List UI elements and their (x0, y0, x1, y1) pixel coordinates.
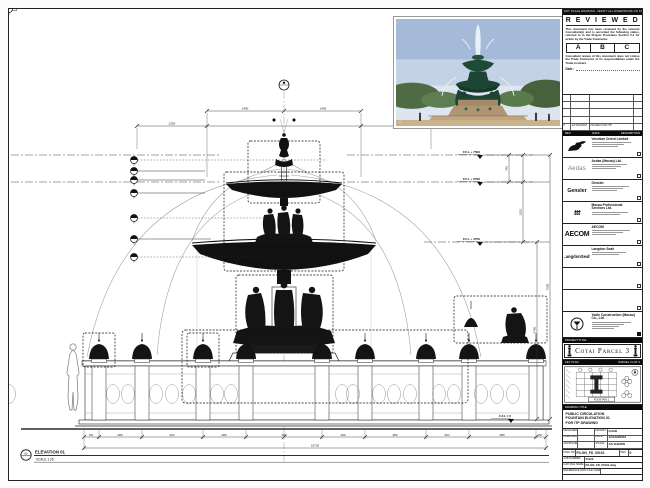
consultant-checkbox[interactable] (637, 240, 641, 244)
project-name: Cotai Parcel 3 (575, 347, 630, 355)
dwg-number: P3-GN_FD_05101 (576, 450, 620, 456)
reference-photo: © (393, 16, 563, 129)
upper-basin (226, 180, 342, 206)
approved-label: APPROVED (563, 442, 578, 449)
consultant-card-langdon-seah: LangdonSeah Langdon Seah (563, 246, 642, 268)
consultant-card-empty-2 (563, 290, 642, 312)
dim-bottom: 450 (89, 434, 94, 437)
designed-label: DESIGNED (563, 429, 578, 436)
cad-file-label: CAD FILE NAME (563, 463, 585, 468)
job-number: 51123 (585, 457, 642, 462)
reviewed-paragraph-2: Consultant review of this document does … (566, 55, 640, 65)
revision-row (563, 109, 642, 116)
dim-bottom: 2610 (444, 434, 450, 437)
photo-image: © (396, 19, 560, 126)
contractor-name: Yadie Construction (Macau) Co., Ltd. (592, 314, 637, 321)
consultant-name: Langdon Seah (592, 248, 637, 252)
svg-text:F.F.L + 7500: F.F.L + 7500 (463, 150, 480, 154)
reference-value (601, 469, 642, 474)
title-block: DO NOT SCALE DRAWING. VERIFY ALL DIMENSI… (562, 9, 642, 480)
gensler-logo: Gensler (567, 188, 586, 194)
consultant-card-venetian: Venetian Orient Limited (563, 136, 642, 158)
scale-label: SCALE (595, 442, 608, 449)
dim-bottom: 1600 (340, 434, 346, 437)
svg-text:F.F.L ± 0: F.F.L ± 0 (499, 414, 511, 418)
consultant-address (592, 230, 637, 235)
key-plan-map: FOUNTAIN 1 (563, 365, 642, 405)
dim-bottom: 1850 (117, 434, 123, 437)
dim-overall-height: 7500 (546, 283, 550, 290)
reviewed-status-options: A B C (566, 43, 640, 53)
reviewed-paragraph-1: This document has been reviewed by the r… (566, 28, 640, 42)
job-label: JOB NUMBER (563, 457, 585, 462)
dim-bottom: 450 (538, 434, 543, 437)
scale-figure (67, 344, 79, 410)
dim-r2: 2010 (519, 208, 523, 215)
reference-label: REFERENCE DWG FILE NAME (563, 469, 601, 474)
revision-row (563, 95, 642, 102)
drawn-value: CHAD (608, 429, 642, 436)
contractor-mark (637, 332, 641, 336)
checked-label: CHECKED (563, 436, 578, 443)
cad-file-name: P3-GN_FD_05101.dwg (585, 463, 642, 468)
dim-bottom: 1600 (281, 434, 287, 437)
dim-top2-left: 2250 (169, 122, 176, 126)
consultant-checkbox[interactable] (637, 152, 641, 156)
consultant-name: Gensler (592, 182, 637, 186)
right-statue-detail (464, 301, 529, 343)
elevation-title: 01 ELEVATION 01 SCALE 1:25 (21, 450, 549, 463)
consultant-checkbox[interactable] (637, 174, 641, 178)
consultant-checkbox[interactable] (637, 218, 641, 222)
aecom-logo: AECOM (565, 231, 590, 238)
consultant-card-aecom: AECOM AECOM (563, 224, 642, 246)
reviewed-date-label: Date : (566, 67, 575, 71)
status-option-a[interactable]: A (567, 44, 591, 52)
dwg-label: DWG NO. (563, 450, 576, 456)
key-plan-area-label: FOUNTAIN 1 (594, 398, 610, 402)
consultant-address (592, 212, 637, 215)
drawn-label: DRAWN (595, 429, 608, 436)
revision-desc: ISSUED FOR ITP (590, 124, 634, 131)
approval-table: DESIGNED DRAWN CHAD CHECKED - DATE 12/JA… (563, 429, 642, 450)
drawing-title: PUBLIC CIRCULATION FOUNTAIN ELEVATION 01… (563, 410, 642, 429)
consultant-checkbox[interactable] (637, 284, 641, 288)
dim-top-left: 1490 (242, 107, 249, 111)
detail-marker-top (279, 80, 289, 90)
revision-row (563, 102, 642, 109)
consultant-name: Aedas (Macau) Ltd. (592, 160, 637, 164)
approved-value: - (578, 442, 595, 449)
consultant-name: Venetian Orient Limited (592, 138, 637, 142)
consultant-card-aedas: Aedas Aedas (Macau) Ltd. (563, 158, 642, 180)
consultant-address (592, 186, 637, 191)
reviewed-stamp: R E V I E W E D This document has been r… (563, 15, 642, 95)
dim-bottom: 1850 (221, 434, 227, 437)
langdon-seah-logo: LangdonSeah (564, 254, 590, 259)
elevation-scale: SCALE 1:25 (36, 458, 54, 462)
consultant-address (592, 252, 637, 255)
consultant-card-mps: ttt Macau Professional Services Ltd. (563, 202, 642, 224)
rev-value: 0 (629, 450, 642, 456)
scale-value: AS SHOWN (608, 442, 642, 449)
consultant-checkbox[interactable] (637, 306, 641, 310)
ornament-right-icon (633, 345, 638, 357)
consultant-address (592, 142, 637, 147)
reviewed-title: R E V I E W E D (566, 17, 640, 26)
contractor-card: Yadie Construction (Macau) Co., Ltd. (563, 312, 642, 338)
venetian-lion-logo-icon (564, 138, 590, 157)
consultant-checkbox[interactable] (637, 262, 641, 266)
revision-row: 0 12/JAN/2016 ISSUED FOR ITP (563, 124, 642, 131)
svg-text:F.F.L + 4750: F.F.L + 4750 (463, 237, 480, 241)
contractor-address (592, 322, 637, 329)
consultant-address (592, 164, 637, 169)
consultant-card-empty-1 (563, 268, 642, 290)
dim-bottom: 2610 (169, 434, 175, 437)
revision-row (563, 117, 642, 124)
date-label: DATE (595, 436, 608, 443)
dim-r1: 740 (505, 166, 509, 171)
revision-table: 0 12/JAN/2016 ISSUED FOR ITP (563, 95, 642, 131)
date-value: 12/JAN/2016 (608, 436, 642, 443)
mps-logo: ttt (574, 208, 580, 217)
consultant-card-gensler: Gensler Gensler (563, 180, 642, 202)
project-title-box: Cotai Parcel 3 (563, 343, 642, 360)
contractor-logo-icon (564, 314, 590, 337)
consultant-name: AECOM (592, 226, 637, 230)
rev-label: REV (620, 450, 629, 456)
designed-value (578, 429, 595, 436)
revision-rev: 0 (563, 124, 571, 131)
svg-text:F.F.L + 6760: F.F.L + 6760 (463, 177, 480, 181)
dwg-number-row: DWG NO. P3-GN_FD_05101 REV 0 (563, 450, 642, 457)
consultant-name: Macau Professional Services Ltd. (592, 204, 637, 211)
dim-top-right: 1490 (320, 107, 327, 111)
dim-overall-width: 16720 (311, 444, 320, 448)
status-option-c[interactable]: C (615, 44, 638, 52)
checked-value: - (578, 436, 595, 443)
dim-bottom: 1850 (392, 434, 398, 437)
elevation-tag: 01 (24, 452, 28, 456)
drawing-sheet: 1490 1490 2250 2250 (8, 8, 643, 481)
ornament-left-icon (567, 345, 572, 357)
large-basin (192, 239, 376, 284)
reviewed-date-field[interactable] (576, 68, 639, 71)
consultant-checkbox[interactable] (637, 196, 641, 200)
elevation-label: ELEVATION 01 (35, 450, 66, 455)
revision-date: 12/JAN/2016 (571, 124, 590, 131)
dim-r3: 4750 (533, 326, 537, 333)
aedas-logo: Aedas (568, 166, 586, 172)
status-option-b[interactable]: B (591, 44, 615, 52)
dim-bottom: 1850 (499, 434, 505, 437)
